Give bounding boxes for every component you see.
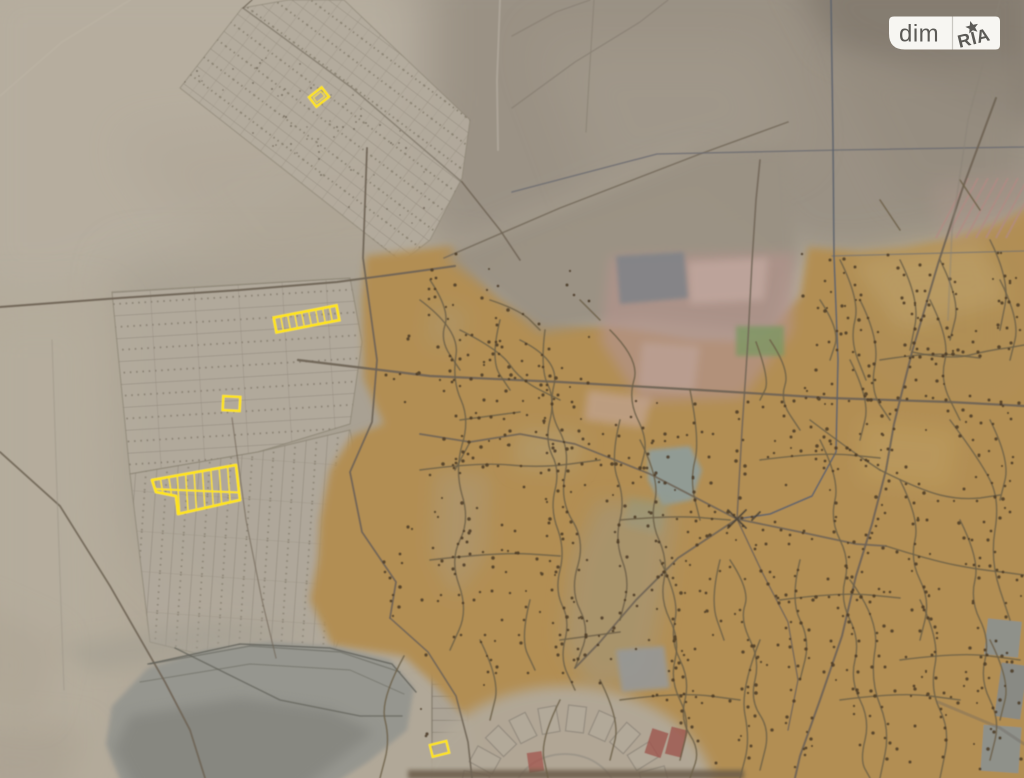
- svg-text:dim: dim: [899, 21, 939, 48]
